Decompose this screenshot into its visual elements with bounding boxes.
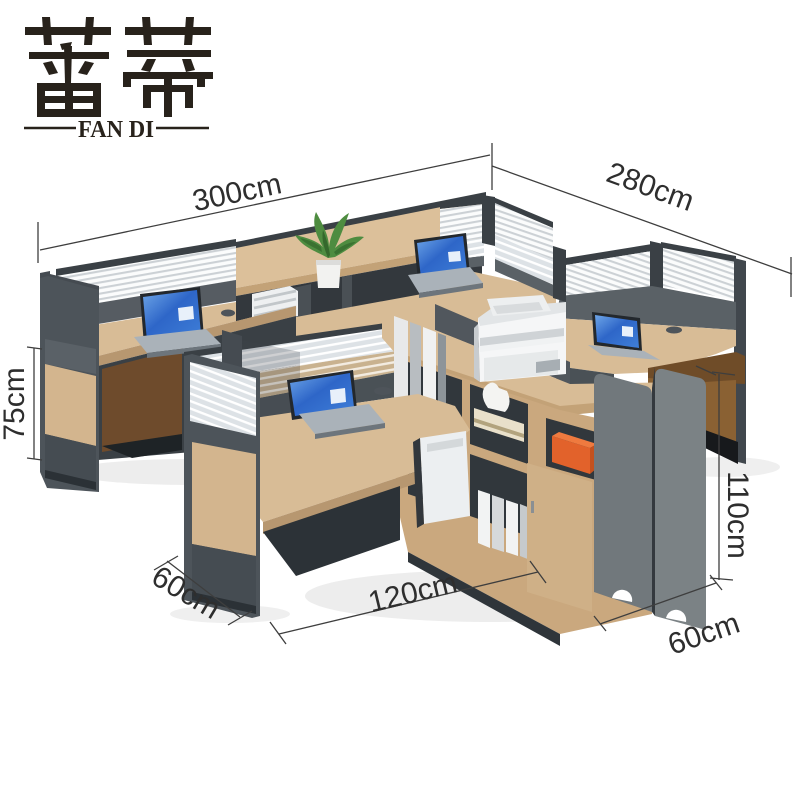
svg-text:110cm: 110cm (721, 471, 754, 559)
svg-text:75cm: 75cm (0, 367, 31, 440)
svg-text:FAN DI: FAN DI (78, 117, 154, 143)
